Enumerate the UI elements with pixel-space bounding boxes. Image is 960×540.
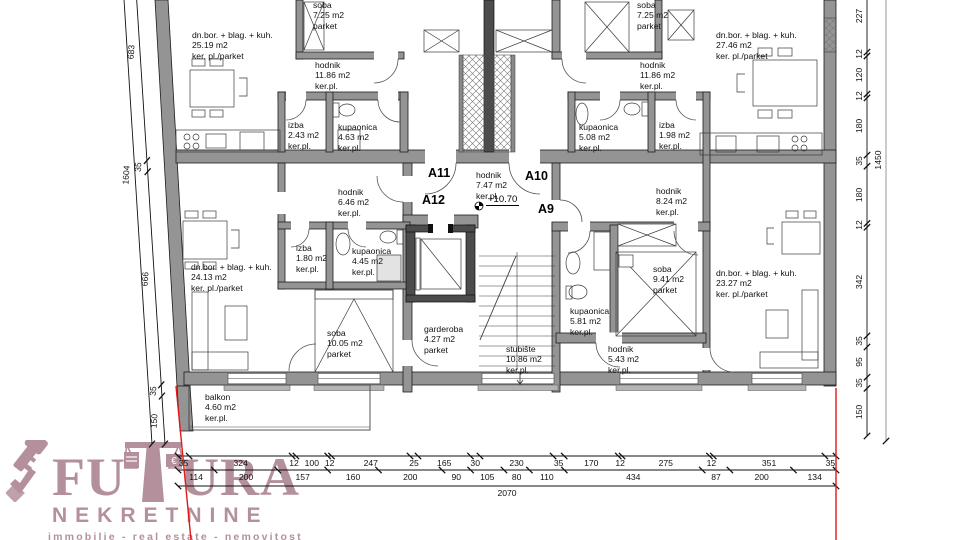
floor-plan-canvas: FU € URA NEKRETNINE immobilie - real est…: [0, 0, 960, 540]
elevation-marker-icon: [475, 202, 483, 210]
balcony-outline: [189, 385, 370, 430]
staircase: [479, 252, 555, 384]
elevator-car: [416, 238, 461, 290]
walls-layer: [155, 0, 836, 431]
floor-plan-drawing: [0, 0, 960, 540]
